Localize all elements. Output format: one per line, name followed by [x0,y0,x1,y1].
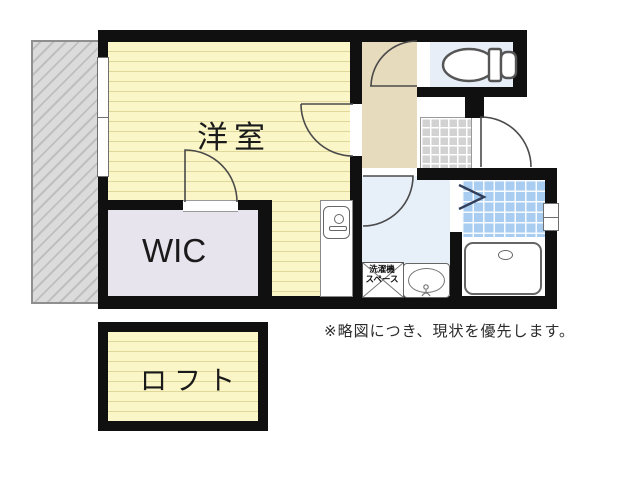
washroom-door-arc [363,176,413,226]
washer-space-label: 洗濯機 スペース [362,264,402,284]
toilet-icon [440,46,520,86]
main-room-door-arc [301,104,353,156]
entrance-door-arc [481,117,531,167]
wic-door-arc [185,150,237,202]
kitchen-sink-slot [329,226,347,231]
toilet-door-arc [370,41,417,86]
washer-space-label-line1: 洗濯機 [362,264,402,274]
washbasin-faucet-icon [420,283,432,297]
main-room-label: 洋室 [197,112,271,157]
loft-label: ロフト [140,359,242,398]
kitchen-faucet-icon [334,214,344,224]
washer-space-label-line2: スペース [362,274,402,284]
disclaimer-note: ※略図につき、現状を優先します。 [324,320,575,341]
floor-plan: 洗濯機 スペース 洋室 WIC ロフト ※略図につき、現状を優先します。 [0,0,640,480]
bathroom-folding-door-icon [459,185,484,209]
wic-label: WIC [142,232,206,270]
bathtub-drain [498,250,513,260]
